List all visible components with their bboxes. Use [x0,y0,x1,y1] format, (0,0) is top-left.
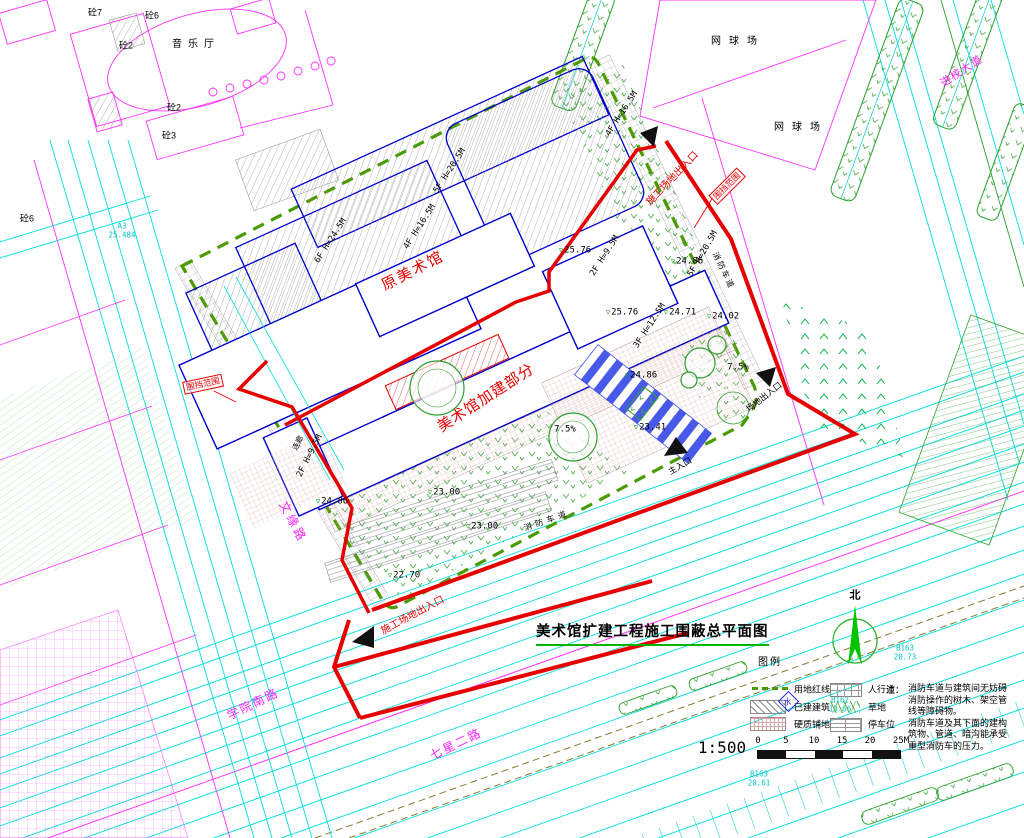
elevation-marker-icon [671,258,675,267]
site-plan-drawing: 音乐厅 网球场 网球场 砼7 砼6 砼2 砼2 砼3 砼6 原美术馆 美术馆加建… [0,0,1024,838]
elevation-marker-icon [559,247,563,256]
elevation-label: 23.00 [428,489,460,498]
benchmark-label: A325.484 [108,222,135,239]
elevation-marker-icon [428,489,432,498]
legend-swatch-redline [752,687,788,690]
tennis-court-label-1: 网球场 [711,37,765,47]
legend-swatch-parking [830,718,862,732]
scale-ratio: 1:500 [698,740,746,756]
elevation-label: 24.86 [316,498,348,507]
north-label: 北 [850,591,861,602]
elevation-marker-icon [664,309,668,318]
legend-swatch-paving [750,717,786,731]
legend-label-built: 已建建筑 [794,701,830,714]
elevation-label: 23.41 [634,424,666,433]
elevation-label: 25.76 [559,247,591,256]
notes-text: 消防车道与建筑间无妨碍 消防操作的树木、架空管 线等障碍物。 消防车道及其下面的… [908,683,1022,752]
parcel-hatch-west [0,348,196,590]
scale-tick: 10 [809,736,820,746]
legend-label-paving: 硬质铺地 [794,718,830,731]
legend-label-parking: 停车位 [868,718,895,731]
tennis-court-label-2: 网球场 [774,123,828,133]
elevation-label: 23.00 [466,523,498,532]
music-hall-label: 音乐厅 [172,40,220,50]
scale-tick: 20 [865,736,876,746]
scale-tick: 25M [893,736,909,746]
elevation-label: 24.86 [625,372,657,381]
building-label-b6-left: 砼6 [20,215,34,224]
elevation-marker-icon [388,572,392,581]
elevation-marker-icon [634,424,638,433]
building-label-b7: 砼7 [88,9,102,18]
slope-label: 7.5% [727,364,749,373]
grass-outside-east [782,300,905,458]
legend-swatch-grass [830,701,860,713]
legend-swatch-sidewalk [830,683,862,697]
elevation-label: 22.70 [388,572,420,581]
building-label-b6-top: 砼6 [145,12,159,21]
elevation-label: 24.86 [671,258,703,267]
elevation-marker-icon [606,309,610,318]
legend-label-redline: 用地红线 [794,683,830,696]
slope-label: 7.5% [554,426,576,435]
building-label-b3: 砼3 [162,132,176,141]
scale-tick: 15 [837,736,848,746]
scale-tick: 5 [783,736,788,746]
benchmark-label: B16320.61 [748,770,771,787]
building-label-b2-lower: 砼2 [167,104,181,113]
elevation-label: 24.02 [707,313,739,322]
notes-prefix: 注： [886,683,904,696]
elevation-label: 25.76 [606,309,638,318]
elevation-marker-icon [316,498,320,507]
legend-label-grass: 草地 [868,701,886,714]
scale-bar [757,750,901,759]
elevation-marker-icon [625,372,629,381]
north-arrow-icon [833,605,877,665]
parcel-grid-southwest [0,610,188,838]
benchmark-label: B16320.73 [894,644,917,661]
elevation-label: 24.71 [664,309,696,318]
elevation-marker-icon [707,313,711,322]
building-label-b2-upper: 砼2 [119,42,133,51]
scale-tick: 0 [755,736,760,746]
legend-heading: 图例 [758,658,782,668]
elevation-marker-icon [466,523,470,532]
drawing-title: 美术馆扩建工程施工围蔽总平面图 [536,620,769,646]
